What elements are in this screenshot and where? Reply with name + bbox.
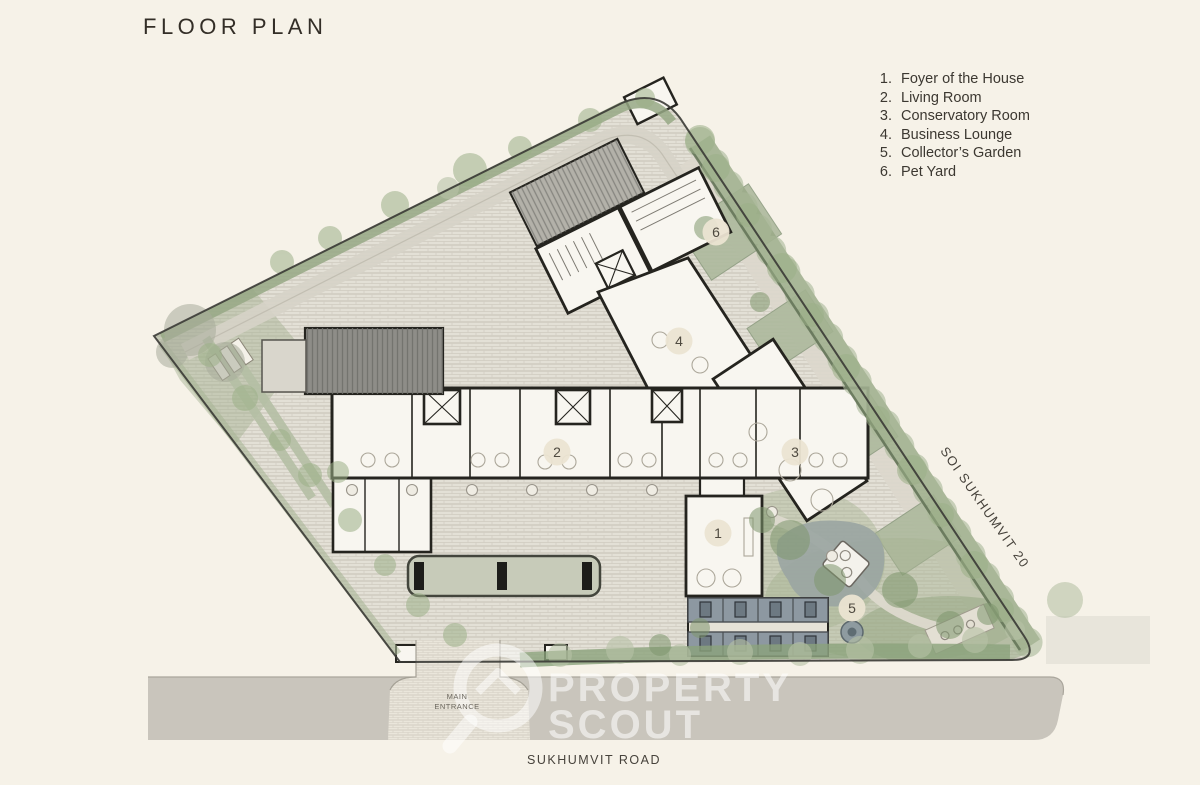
room-marker-2: 2 [544, 439, 571, 466]
page-title: FLOOR PLAN [143, 14, 327, 40]
legend: 1.Foyer of the House 2.Living Room 3.Con… [874, 70, 1030, 181]
road-label: SUKHUMVIT ROAD [494, 753, 694, 767]
legend-item-label: Business Lounge [901, 126, 1012, 145]
legend-item: 5.Collector’s Garden [874, 144, 1030, 163]
legend-item-label: Pet Yard [901, 163, 956, 182]
svg-text:6: 6 [712, 224, 720, 240]
svg-text:2: 2 [553, 444, 561, 460]
legend-item: 1.Foyer of the House [874, 70, 1030, 89]
room-marker-5: 5 [839, 595, 866, 622]
porte-cochere-canopy [408, 556, 600, 596]
room-marker-3: 3 [782, 439, 809, 466]
legend-item-label: Collector’s Garden [901, 144, 1021, 163]
main-entrance-label: MAIN ENTRANCE [407, 692, 507, 711]
legend-item: 6.Pet Yard [874, 163, 1030, 182]
room-marker-6: 6 [703, 219, 730, 246]
legend-item-label: Conservatory Room [901, 107, 1030, 126]
svg-text:4: 4 [675, 333, 683, 349]
room-marker-1: 1 [705, 520, 732, 547]
svg-text:1: 1 [714, 525, 722, 541]
legend-item: 3.Conservatory Room [874, 107, 1030, 126]
svg-text:5: 5 [848, 600, 856, 616]
legend-item: 4.Business Lounge [874, 126, 1030, 145]
room-marker-4: 4 [666, 328, 693, 355]
svg-text:3: 3 [791, 444, 799, 460]
legend-item-label: Living Room [901, 89, 982, 108]
neighbor-lot [1046, 616, 1150, 664]
legend-item-label: Foyer of the House [901, 70, 1024, 89]
legend-item: 2.Living Room [874, 89, 1030, 108]
floor-plan-page: PROPERTY SCOUT 123456 FLOOR PLAN 1.Foyer… [0, 0, 1200, 785]
watermark-line2: SCOUT [548, 703, 703, 747]
